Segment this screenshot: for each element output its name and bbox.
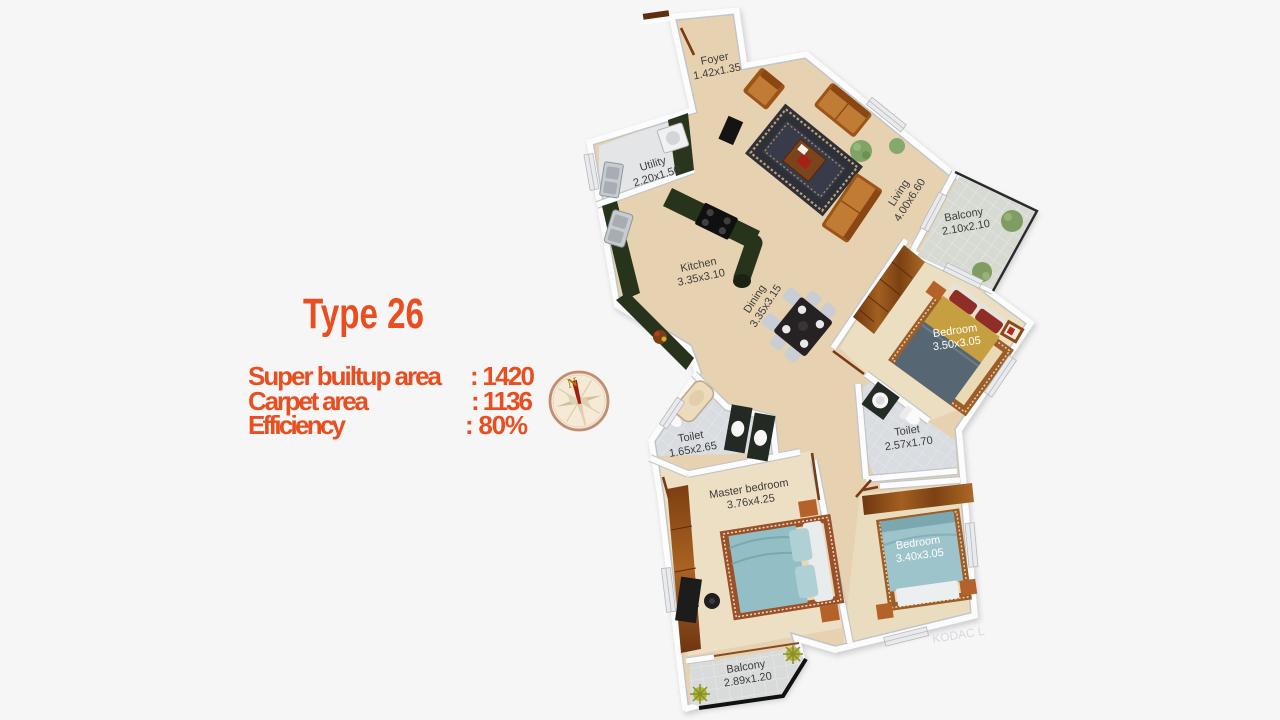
svg-text:: 80%: : 80% bbox=[465, 410, 528, 440]
svg-text:Efficiency: Efficiency bbox=[248, 410, 347, 440]
svg-text:Type 26: Type 26 bbox=[303, 290, 424, 338]
